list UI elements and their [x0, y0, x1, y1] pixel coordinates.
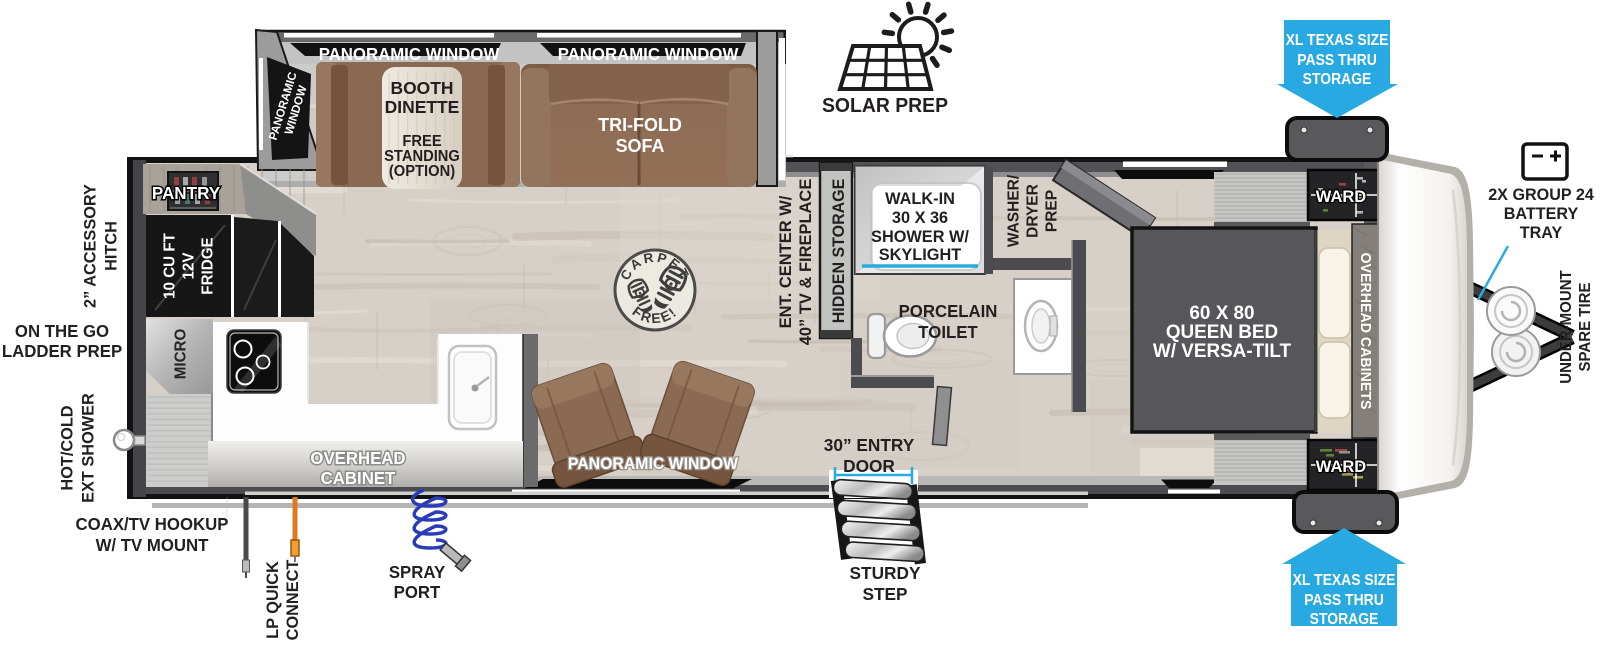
svg-text:2” ACCESSORY: 2” ACCESSORY — [80, 184, 99, 308]
svg-text:PORT: PORT — [394, 582, 441, 602]
svg-text:TRI-FOLD: TRI-FOLD — [598, 115, 682, 135]
svg-text:(OPTION): (OPTION) — [389, 163, 455, 180]
svg-text:STORAGE: STORAGE — [1303, 71, 1372, 88]
svg-text:WARD: WARD — [1316, 188, 1366, 206]
svg-text:PASS THRU: PASS THRU — [1304, 592, 1384, 609]
svg-text:DRYER: DRYER — [1024, 184, 1041, 238]
svg-text:PANORAMIC WINDOW: PANORAMIC WINDOW — [319, 44, 500, 64]
svg-text:DOOR: DOOR — [843, 456, 895, 476]
svg-text:SOFA: SOFA — [616, 136, 665, 156]
svg-text:PASS THRU: PASS THRU — [1297, 52, 1377, 69]
svg-text:STEP: STEP — [862, 584, 907, 604]
svg-text:STORAGE: STORAGE — [1310, 611, 1379, 628]
svg-text:HIDDEN STORAGE: HIDDEN STORAGE — [830, 179, 848, 324]
svg-text:STURDY: STURDY — [850, 563, 921, 583]
svg-text:BOOTH: BOOTH — [390, 78, 453, 98]
svg-text:TRAY: TRAY — [1520, 223, 1562, 242]
svg-text:OVERHEAD CABINETS: OVERHEAD CABINETS — [1357, 253, 1373, 410]
svg-text:SHOWER W/: SHOWER W/ — [871, 227, 969, 246]
svg-text:PREP: PREP — [1043, 190, 1060, 232]
svg-text:MICRO: MICRO — [172, 329, 189, 380]
svg-text:XL TEXAS SIZE: XL TEXAS SIZE — [1293, 572, 1396, 589]
svg-text:WASHER/: WASHER/ — [1005, 174, 1022, 247]
svg-text:ON THE GO: ON THE GO — [15, 321, 109, 341]
svg-text:XL TEXAS SIZE: XL TEXAS SIZE — [1286, 32, 1389, 49]
svg-text:30” ENTRY: 30” ENTRY — [824, 435, 915, 455]
svg-text:CONNECT: CONNECT — [283, 560, 302, 641]
svg-text:PORCELAIN: PORCELAIN — [899, 301, 998, 321]
svg-text:W/ VERSA-TILT: W/ VERSA-TILT — [1153, 341, 1291, 362]
svg-text:12V: 12V — [180, 252, 197, 280]
svg-text:PANORAMIC WINDOW: PANORAMIC WINDOW — [558, 44, 739, 64]
svg-text:UNDER-MOUNT: UNDER-MOUNT — [1558, 270, 1575, 384]
svg-text:WARD: WARD — [1316, 458, 1366, 476]
svg-text:FRIDGE: FRIDGE — [199, 237, 216, 294]
svg-text:30 X 36: 30 X 36 — [892, 208, 948, 227]
svg-text:TOILET: TOILET — [918, 322, 978, 342]
svg-text:PANTRY: PANTRY — [152, 183, 221, 204]
svg-text:ENT. CENTER W/: ENT. CENTER W/ — [776, 195, 795, 328]
svg-text:COAX/TV HOOKUP: COAX/TV HOOKUP — [76, 514, 229, 534]
svg-text:HOT/COLD: HOT/COLD — [57, 405, 76, 490]
svg-text:2X GROUP 24: 2X GROUP 24 — [1488, 185, 1594, 204]
svg-text:W/ TV MOUNT: W/ TV MOUNT — [96, 535, 209, 555]
svg-text:10 CU FT: 10 CU FT — [161, 233, 178, 299]
svg-text:SKYLIGHT: SKYLIGHT — [879, 245, 961, 264]
svg-text:40” TV & FIREPLACE: 40” TV & FIREPLACE — [796, 179, 815, 346]
svg-text:LADDER PREP: LADDER PREP — [2, 341, 122, 361]
svg-text:SOLAR PREP: SOLAR PREP — [822, 95, 948, 117]
svg-text:PANORAMIC WINDOW: PANORAMIC WINDOW — [568, 455, 739, 473]
svg-text:CABINET: CABINET — [321, 468, 396, 488]
svg-text:WALK-IN: WALK-IN — [885, 189, 955, 208]
svg-text:BATTERY: BATTERY — [1504, 204, 1578, 223]
svg-text:OVERHEAD: OVERHEAD — [310, 448, 405, 468]
svg-text:LP QUICK: LP QUICK — [263, 561, 282, 639]
svg-text:EXT SHOWER: EXT SHOWER — [78, 393, 97, 503]
svg-text:DINETTE: DINETTE — [385, 97, 460, 117]
svg-text:HITCH: HITCH — [101, 221, 120, 271]
svg-text:SPARE TIRE: SPARE TIRE — [1577, 282, 1594, 371]
svg-text:SPRAY: SPRAY — [389, 562, 446, 582]
